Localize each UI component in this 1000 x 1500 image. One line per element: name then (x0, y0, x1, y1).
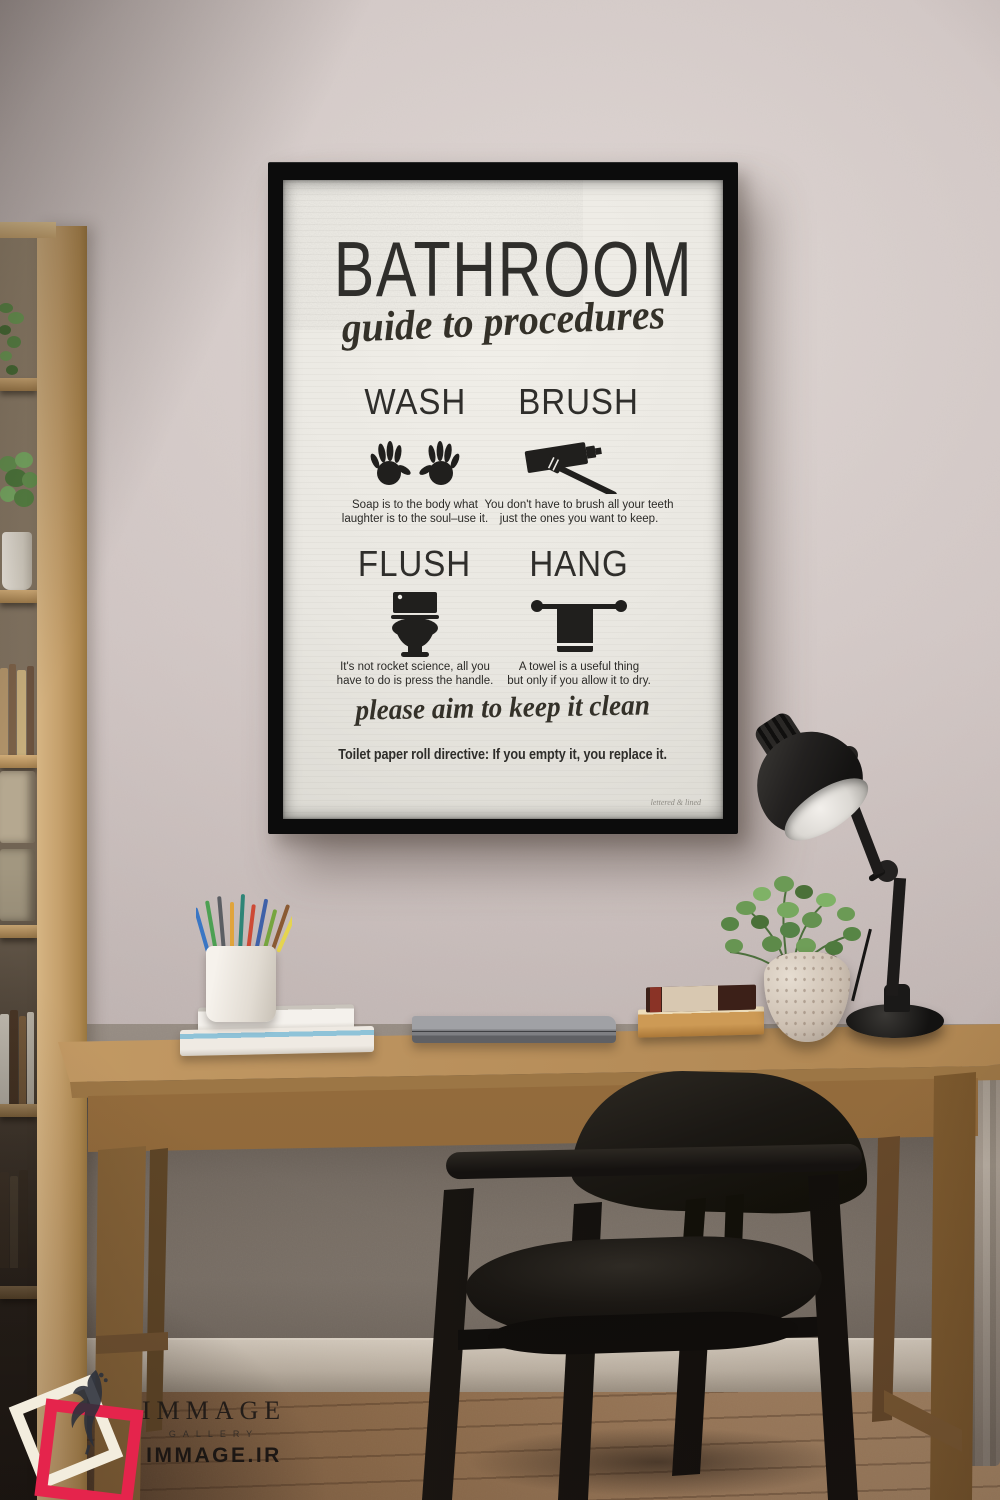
colored-pencils (196, 892, 292, 954)
poster-frame: BATHROOM guide to procedures WASH (268, 162, 738, 834)
artist-signature: lettered & lined (651, 798, 701, 807)
section-heading: HANG (479, 546, 679, 582)
section-hang: HANG A towel is a useful thingbut only i… (479, 546, 679, 689)
watermark-brand: IMMAGE (124, 1396, 304, 1426)
watermark-domain: IMMAGE.IR (124, 1444, 304, 1468)
section-caption: A towel is a useful thingbut only if you… (479, 661, 679, 689)
poster-footer-directive: Toilet paper roll directive: If you empt… (283, 746, 723, 763)
poster-footer-script: please aim to keep it clean (283, 692, 723, 725)
section-brush: BRUSH (479, 384, 679, 527)
maroon-book (646, 985, 756, 1013)
watermark: IMMAGE GALLERY IMMAGE.IR (8, 1368, 308, 1494)
watermark-sub: GALLERY (124, 1429, 304, 1439)
poster-subtitle: guide to procedures (283, 298, 723, 346)
white-book-blue-stripe (180, 1026, 374, 1056)
poster-canvas: BATHROOM guide to procedures WASH (283, 180, 723, 819)
pencil-cup (206, 946, 276, 1022)
towel-rail-icon (479, 591, 679, 659)
interior-photo-scene: BATHROOM guide to procedures WASH (0, 0, 1000, 1500)
laptop (412, 1016, 616, 1043)
section-caption: You don't have to brush all your teethju… (479, 499, 679, 527)
section-heading: BRUSH (479, 384, 679, 420)
toothpaste-toothbrush-icon (479, 429, 679, 497)
bookshelf-side-panel (37, 226, 87, 1500)
peacock-icon (57, 1364, 121, 1460)
bookshelf (0, 222, 90, 1500)
bookshelf-shadow (0, 234, 37, 1500)
bookshelf-top (0, 222, 56, 238)
